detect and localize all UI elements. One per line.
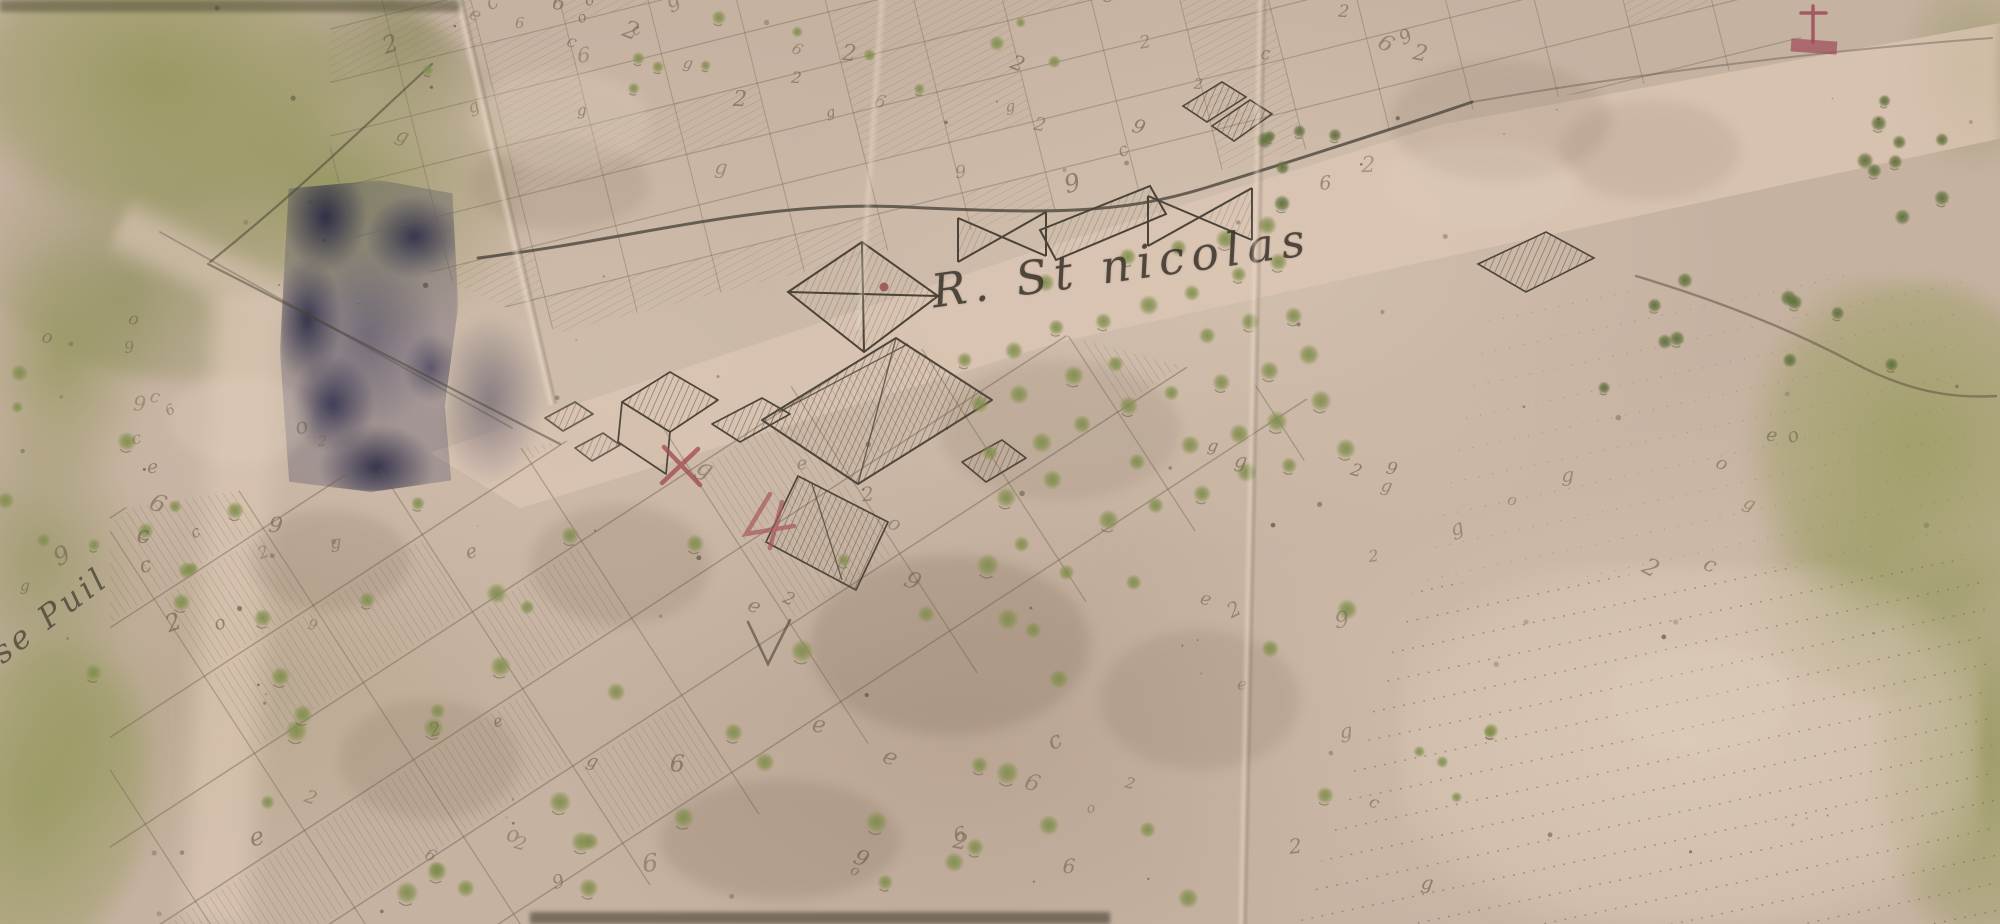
paper-edge-shadow-bottom <box>530 912 1110 924</box>
paper-smudges <box>170 60 1790 900</box>
svg-text:6: 6 <box>515 15 525 32</box>
svg-text:6: 6 <box>1319 172 1333 195</box>
meadow-wash-right <box>1700 280 2000 700</box>
building-roof-large <box>762 338 992 484</box>
svg-text:9: 9 <box>1384 458 1399 480</box>
parcel-grid-top-band <box>206 0 1807 433</box>
manuscript-map-photo: c92229962g229cggo2g66ge22o6c2g666gc2g2cc… <box>0 0 2000 924</box>
svg-text:2: 2 <box>317 434 327 450</box>
svg-text:e: e <box>878 742 902 772</box>
building-small <box>575 433 620 461</box>
svg-text:c: c <box>135 520 151 549</box>
svg-text:6: 6 <box>789 39 805 60</box>
left-road-name-fragment: se Puil <box>0 559 116 671</box>
red-x-mark <box>662 447 700 485</box>
street-gate-symbols <box>958 186 1252 262</box>
ink-stain-bleed <box>446 300 556 500</box>
svg-text:o: o <box>1505 489 1519 510</box>
svg-text:2: 2 <box>254 542 272 564</box>
svg-text:c: c <box>1100 0 1116 9</box>
svg-text:9: 9 <box>1333 607 1351 635</box>
svg-text:2: 2 <box>950 829 970 857</box>
svg-text:o: o <box>127 308 141 330</box>
svg-text:2: 2 <box>1192 76 1203 93</box>
svg-text:o: o <box>574 7 589 27</box>
side-road-left <box>169 293 297 924</box>
side-road-upper-left <box>105 194 603 485</box>
svg-text:g: g <box>1338 719 1354 744</box>
svg-text:9: 9 <box>954 162 967 183</box>
svg-text:9: 9 <box>1395 24 1417 50</box>
svg-text:e: e <box>1237 674 1247 693</box>
svg-text:g: g <box>20 576 31 595</box>
svg-text:o: o <box>884 510 905 537</box>
svg-text:e: e <box>1198 588 1213 611</box>
svg-text:6: 6 <box>1062 854 1076 878</box>
svg-text:c: c <box>148 386 161 408</box>
svg-text:c: c <box>187 521 204 542</box>
svg-text:2: 2 <box>731 87 747 113</box>
svg-text:g: g <box>714 155 729 179</box>
orchard-trees <box>0 10 1950 909</box>
main-street-surface <box>0 0 2000 924</box>
svg-text:g: g <box>1206 435 1220 456</box>
svg-text:c: c <box>1043 725 1067 756</box>
svg-text:c: c <box>1260 44 1270 64</box>
parcel-grid-bottom-band <box>0 0 1967 924</box>
svg-text:2: 2 <box>1366 546 1379 566</box>
svg-text:e: e <box>462 539 480 564</box>
svg-text:g: g <box>465 96 483 119</box>
svg-text:g: g <box>661 0 685 14</box>
svg-text:2: 2 <box>1347 460 1364 483</box>
svg-text:g: g <box>692 451 719 484</box>
building-roof <box>622 372 718 432</box>
svg-text:g: g <box>1233 448 1249 473</box>
svg-text:6: 6 <box>551 0 567 16</box>
svg-text:c: c <box>1114 139 1133 162</box>
svg-text:6: 6 <box>576 42 592 67</box>
svg-text:g: g <box>1561 464 1574 487</box>
svg-text:2: 2 <box>1137 32 1152 54</box>
svg-text:2: 2 <box>160 606 185 638</box>
svg-text:6: 6 <box>422 844 439 866</box>
svg-text:g: g <box>330 533 342 554</box>
ink-tree-scribbles: c92229962g229cggo2g66ge22o6c2g666gc2g2cc… <box>20 0 1803 895</box>
svg-text:9: 9 <box>123 337 135 357</box>
building-small <box>962 440 1026 482</box>
svg-text:9: 9 <box>900 565 926 597</box>
svg-text:o: o <box>1783 422 1803 448</box>
svg-text:9: 9 <box>306 617 319 635</box>
square-x-building <box>788 242 938 352</box>
building-top-small <box>1183 82 1246 122</box>
red-cross-monument-icon <box>1791 6 1838 55</box>
svg-text:e: e <box>466 3 485 27</box>
red-numeral-mark <box>746 494 794 548</box>
svg-text:2: 2 <box>789 67 802 87</box>
road-ink-lines <box>160 38 1996 664</box>
building-cluster <box>545 338 1026 590</box>
svg-text:o: o <box>505 822 520 848</box>
building-top-right-gable <box>1478 232 1594 292</box>
field-row-dots-upper <box>1268 141 2000 659</box>
meadow-wash-right-edge <box>1870 540 2000 924</box>
svg-text:g: g <box>577 101 587 119</box>
svg-text:6: 6 <box>670 749 685 777</box>
svg-text:c: c <box>1366 792 1382 813</box>
ink-stain-blot <box>278 179 459 493</box>
svg-text:2: 2 <box>859 482 875 506</box>
foxing-specks <box>20 6 1972 917</box>
paper-crease <box>1236 0 1268 924</box>
svg-text:2: 2 <box>1006 49 1028 77</box>
svg-text:g: g <box>824 104 836 122</box>
svg-text:2: 2 <box>378 28 403 60</box>
meadow-wash-top-left <box>0 0 520 380</box>
svg-text:2: 2 <box>1336 1 1350 22</box>
meadow-wash-bottom-left <box>0 580 217 924</box>
svg-text:c: c <box>129 428 143 450</box>
svg-text:g: g <box>1420 872 1435 895</box>
svg-text:2: 2 <box>1122 773 1137 793</box>
svg-text:g: g <box>681 53 694 73</box>
red-dot <box>880 283 889 292</box>
svg-text:g: g <box>393 123 413 149</box>
svg-text:2: 2 <box>1360 153 1375 178</box>
building-roof <box>712 398 790 442</box>
red-marks <box>662 6 1837 548</box>
svg-text:6: 6 <box>641 848 660 879</box>
svg-text:6: 6 <box>873 91 888 113</box>
building-top-small <box>1212 100 1272 141</box>
svg-text:g: g <box>1446 514 1466 541</box>
field-row-dots <box>1113 421 2000 924</box>
svg-text:g: g <box>1740 492 1759 516</box>
paper-edge-shadow-top <box>0 0 460 12</box>
svg-text:2: 2 <box>1222 596 1245 624</box>
svg-text:6: 6 <box>145 487 170 520</box>
svg-text:9: 9 <box>133 391 147 416</box>
svg-text:e: e <box>245 821 267 853</box>
svg-text:6: 6 <box>163 401 178 419</box>
svg-text:9: 9 <box>1129 114 1148 140</box>
svg-text:c: c <box>629 21 643 40</box>
svg-text:e: e <box>744 592 765 619</box>
svg-text:e: e <box>796 453 809 475</box>
svg-text:2: 2 <box>779 588 798 611</box>
svg-text:6: 6 <box>1374 29 1399 59</box>
svg-text:2: 2 <box>1410 39 1430 67</box>
outlying-buildings <box>1183 82 1594 292</box>
svg-text:o: o <box>291 413 312 441</box>
svg-text:e: e <box>490 710 506 731</box>
svg-text:e: e <box>147 457 159 479</box>
svg-text:g: g <box>1379 476 1394 498</box>
svg-text:o: o <box>1085 800 1096 817</box>
svg-text:2: 2 <box>1031 114 1048 137</box>
svg-text:9: 9 <box>850 845 873 874</box>
meadow-wash-left-edge <box>0 250 200 810</box>
building-wing <box>766 476 888 590</box>
svg-text:o: o <box>581 0 598 10</box>
paper-crease <box>854 0 888 330</box>
svg-text:9: 9 <box>48 539 75 572</box>
street-name-label: R. St nicolas <box>928 212 1315 319</box>
svg-text:2: 2 <box>840 40 858 67</box>
svg-text:2: 2 <box>1637 551 1665 583</box>
svg-text:o: o <box>211 612 229 636</box>
svg-text:2: 2 <box>300 786 319 810</box>
svg-text:2: 2 <box>618 13 644 46</box>
svg-text:e: e <box>1764 424 1779 447</box>
svg-text:c: c <box>564 31 579 53</box>
svg-text:c: c <box>1700 550 1721 578</box>
meadow-wash-top-right <box>1890 0 2000 190</box>
svg-text:g: g <box>1004 97 1016 116</box>
building-small <box>545 402 593 431</box>
ink-drawing-layer: c92229962g229cggo2g66ge22o6c2g666gc2g2cc… <box>0 0 2000 924</box>
svg-text:2: 2 <box>1286 834 1303 859</box>
svg-text:6: 6 <box>951 822 969 847</box>
open-field-bottom-right <box>1400 565 1980 924</box>
paper-crease <box>450 0 558 406</box>
svg-text:o: o <box>848 862 863 880</box>
svg-text:9: 9 <box>267 512 284 539</box>
svg-text:o: o <box>40 326 54 349</box>
svg-text:e: e <box>810 711 827 739</box>
street-long-roof <box>1040 186 1166 260</box>
svg-text:2: 2 <box>426 719 444 743</box>
svg-text:2: 2 <box>511 832 528 855</box>
svg-text:g: g <box>584 751 600 773</box>
svg-text:c: c <box>481 0 503 15</box>
svg-text:c: c <box>136 551 155 578</box>
svg-text:6: 6 <box>1021 769 1043 798</box>
svg-text:9: 9 <box>1061 167 1084 199</box>
svg-text:9: 9 <box>550 870 568 894</box>
building-front <box>618 402 670 474</box>
svg-text:o: o <box>1712 452 1731 476</box>
